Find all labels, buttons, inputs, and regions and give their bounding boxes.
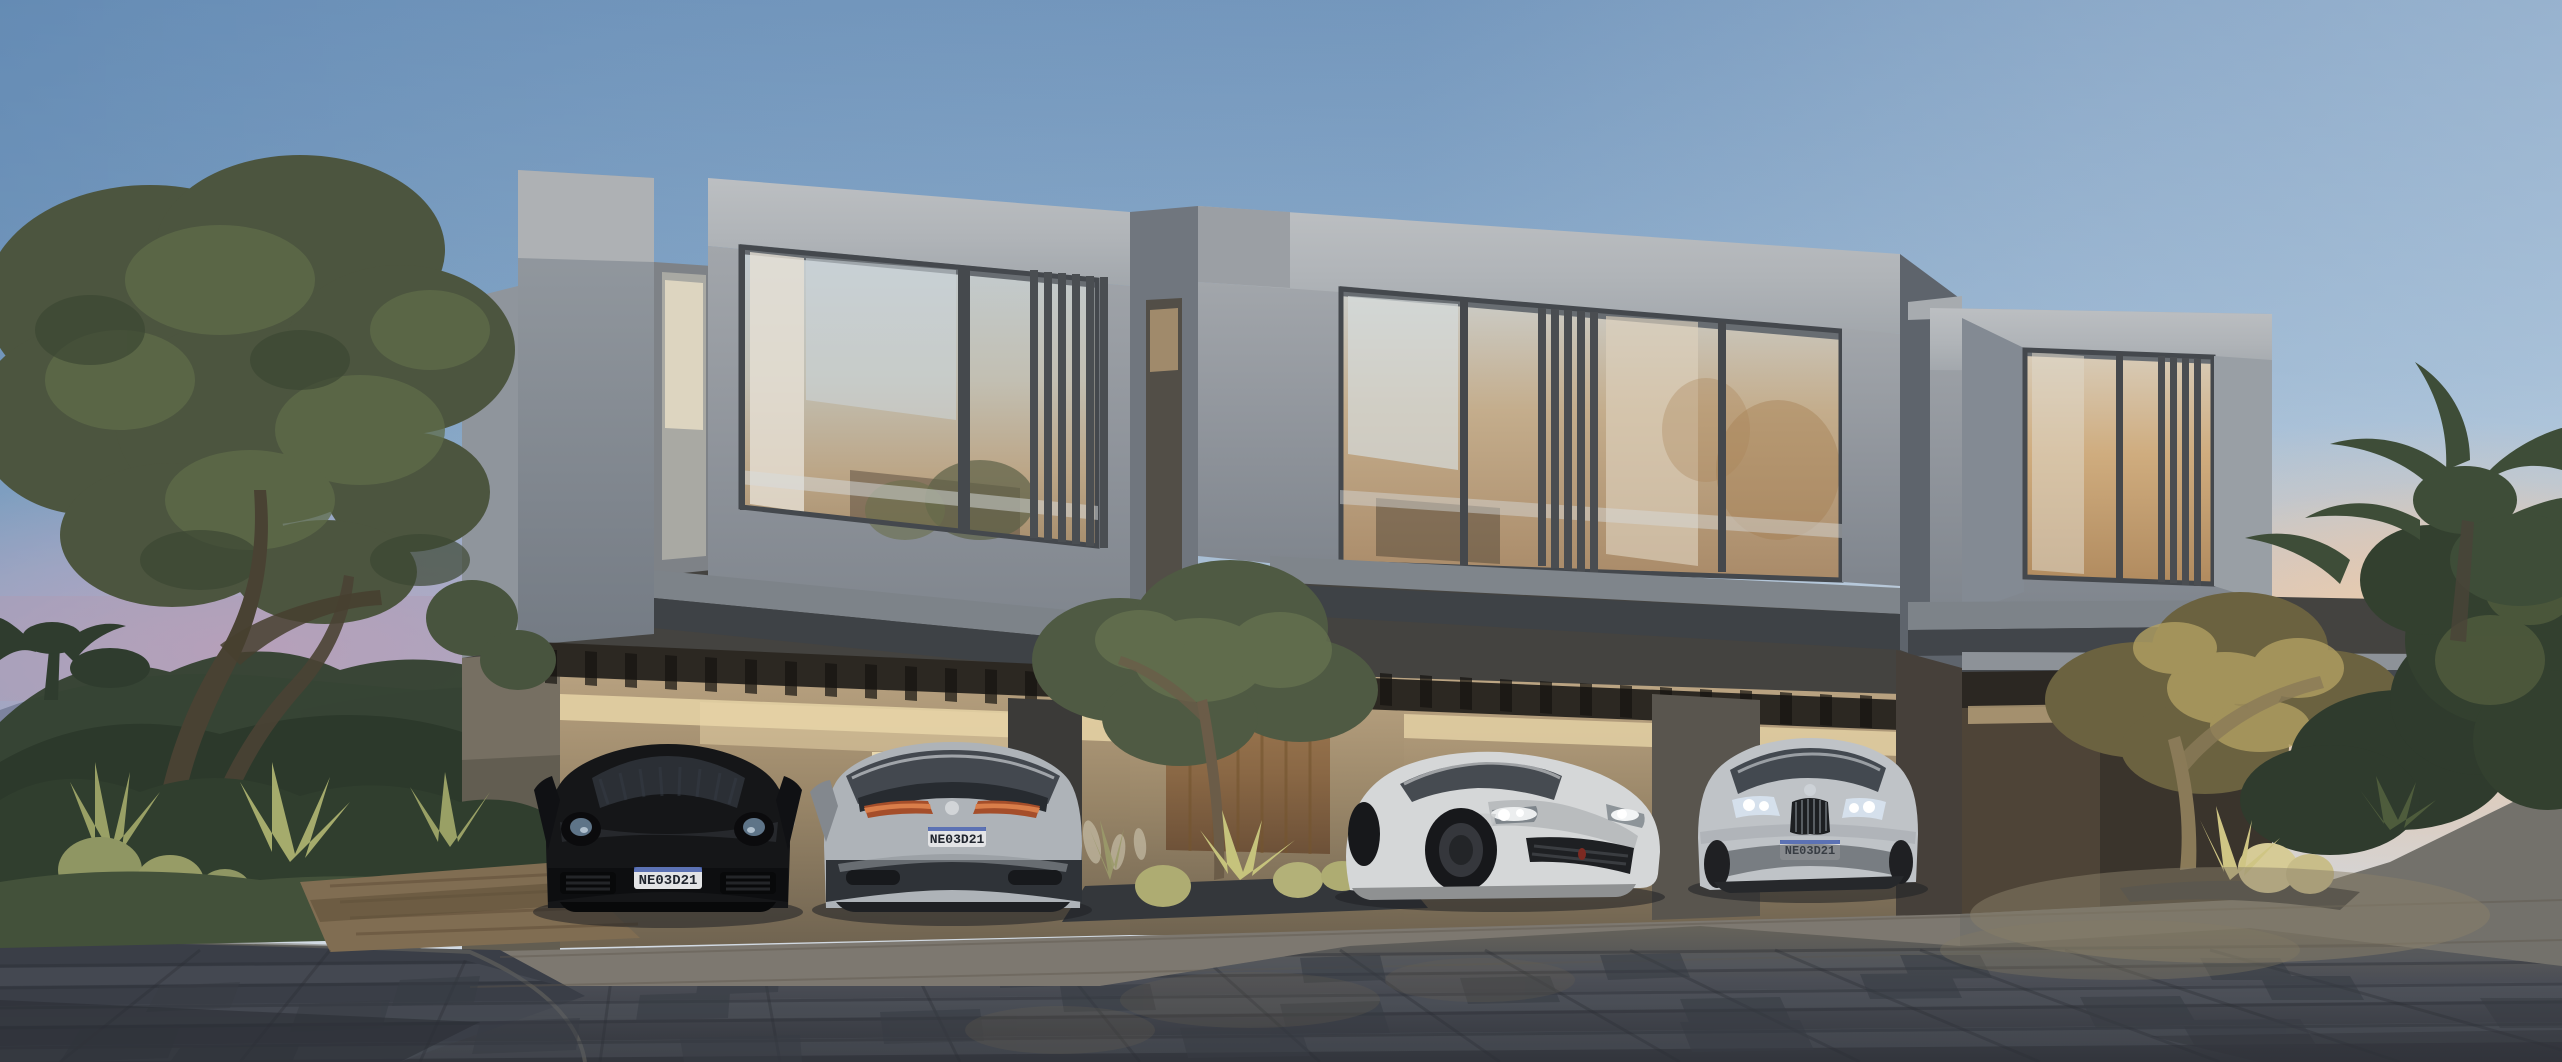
svg-text:NE03D21: NE03D21 <box>639 873 698 889</box>
svg-text:NE03D21: NE03D21 <box>930 832 985 847</box>
